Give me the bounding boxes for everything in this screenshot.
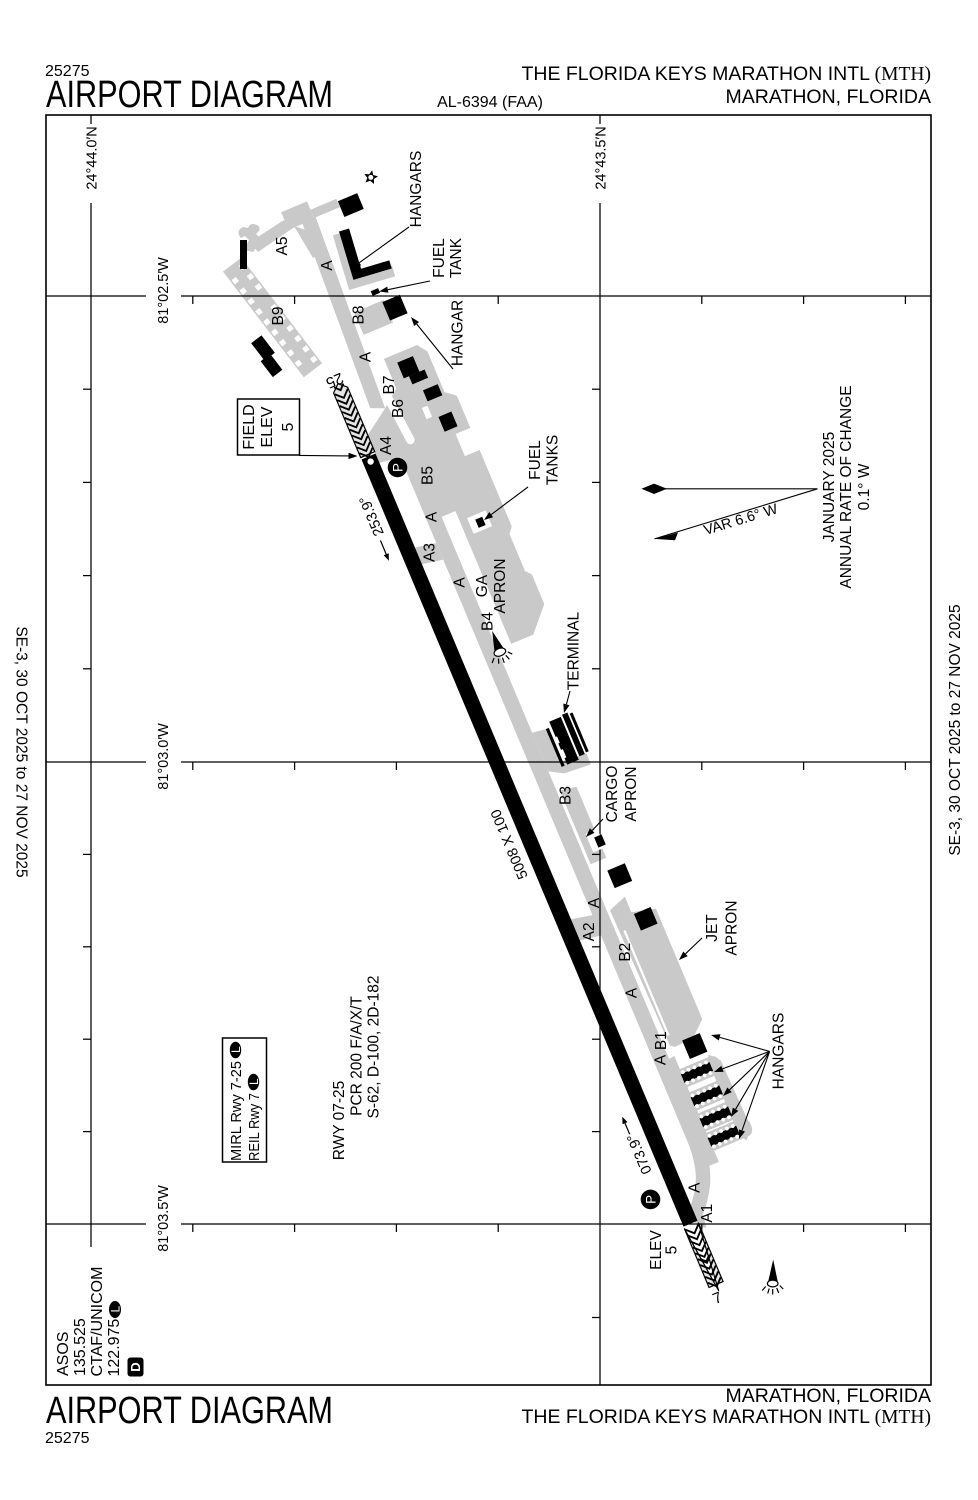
svg-text:5: 5	[280, 422, 297, 431]
svg-text:L: L	[229, 1046, 243, 1053]
svg-text:APRON: APRON	[492, 558, 509, 613]
svg-text:APRON: APRON	[623, 766, 640, 821]
svg-text:B8: B8	[351, 306, 368, 325]
svg-text:A: A	[358, 351, 375, 362]
svg-text:AIRPORT DIAGRAM: AIRPORT DIAGRAM	[46, 1390, 333, 1432]
svg-text:B9: B9	[270, 307, 287, 326]
svg-text:AIRPORT DIAGRAM: AIRPORT DIAGRAM	[46, 74, 333, 116]
svg-text:S-62, D-100, 2D-182: S-62, D-100, 2D-182	[366, 975, 383, 1118]
svg-text:HANGARS: HANGARS	[408, 151, 425, 228]
svg-text:MARATHON, FLORIDA: MARATHON, FLORIDA	[726, 1385, 931, 1407]
svg-text:B5: B5	[420, 466, 437, 485]
svg-text:TANK: TANK	[448, 237, 465, 278]
svg-text:FIELD: FIELD	[241, 404, 258, 449]
svg-text:A4: A4	[378, 436, 395, 455]
svg-text:A: A	[586, 897, 603, 908]
svg-text:GA: GA	[474, 574, 491, 597]
svg-text:HANGAR: HANGAR	[450, 300, 467, 366]
svg-text:0.1° W: 0.1° W	[856, 463, 873, 510]
svg-text:A3: A3	[422, 543, 439, 562]
svg-text:ELEV: ELEV	[648, 1230, 665, 1270]
svg-text:ELEV: ELEV	[259, 406, 276, 447]
svg-text:A1: A1	[699, 1204, 716, 1223]
svg-text:HANGARS: HANGARS	[771, 1013, 788, 1090]
svg-text:TERMINAL: TERMINAL	[566, 611, 583, 690]
svg-text:A2: A2	[581, 922, 598, 941]
svg-text:B6: B6	[390, 399, 407, 418]
svg-text:122.975: 122.975	[106, 1319, 123, 1377]
svg-text:L: L	[247, 1078, 261, 1085]
svg-text:81°03.5′W: 81°03.5′W	[156, 1185, 172, 1252]
svg-text:B7: B7	[381, 376, 398, 395]
svg-text:ASOS: ASOS	[55, 1332, 72, 1376]
svg-text:B3: B3	[558, 786, 575, 805]
svg-text:25275: 25275	[45, 1430, 90, 1447]
svg-text:A: A	[624, 987, 641, 998]
svg-text:D: D	[128, 1362, 143, 1371]
svg-text:PCR 200 F/A/X/T: PCR 200 F/A/X/T	[349, 996, 366, 1116]
svg-text:P: P	[390, 463, 405, 472]
svg-text:P: P	[643, 1195, 658, 1204]
svg-text:SE-3, 30 OCT 2025 to 27 NOV: SE-3, 30 OCT 2025 to 27 NOV 2025	[13, 626, 30, 877]
svg-text:A: A	[653, 1054, 670, 1065]
svg-text:APRON: APRON	[724, 900, 741, 955]
svg-text:24°43.5′N: 24°43.5′N	[594, 126, 610, 189]
svg-text:JET: JET	[704, 914, 721, 942]
svg-text:L: L	[108, 1306, 122, 1313]
svg-text:B2: B2	[617, 943, 634, 962]
svg-text:FUEL: FUEL	[431, 238, 448, 278]
svg-text:A: A	[687, 1182, 704, 1193]
svg-text:REIL Rwy 7: REIL Rwy 7	[246, 1093, 263, 1161]
svg-text:CTAF/UNICOM: CTAF/UNICOM	[89, 1267, 106, 1377]
svg-text:THE FLORIDA KEYS MARATHON INTL: THE FLORIDA KEYS MARATHON INTL (MTH)	[521, 1406, 931, 1428]
svg-text:MARATHON, FLORIDA: MARATHON, FLORIDA	[726, 86, 931, 108]
svg-text:5: 5	[664, 1246, 681, 1255]
svg-text:A: A	[424, 511, 441, 522]
svg-text:JANUARY 2025: JANUARY 2025	[821, 432, 838, 543]
svg-text:MIRL Rwy 7-25: MIRL Rwy 7-25	[228, 1061, 245, 1161]
svg-text:RWY 07-25: RWY 07-25	[331, 1081, 348, 1161]
svg-text:ANNUAL RATE OF CHANGE: ANNUAL RATE OF CHANGE	[838, 385, 855, 588]
svg-text:A: A	[319, 260, 336, 271]
svg-text:81°03.0′W: 81°03.0′W	[156, 723, 172, 790]
svg-text:A5: A5	[274, 237, 291, 256]
svg-text:TANKS: TANKS	[545, 435, 562, 486]
svg-text:SE-3, 30 OCT 2025 to 27 NOV: SE-3, 30 OCT 2025 to 27 NOV 2025	[947, 604, 964, 855]
svg-text:CARGO: CARGO	[604, 766, 621, 823]
svg-text:THE FLORIDA KEYS MARATHON INTL: THE FLORIDA KEYS MARATHON INTL (MTH)	[521, 63, 931, 85]
svg-text:B1: B1	[653, 1031, 670, 1050]
svg-text:AL-6394 (FAA): AL-6394 (FAA)	[437, 94, 543, 111]
svg-text:A: A	[452, 577, 469, 588]
svg-text:FUEL: FUEL	[527, 440, 544, 480]
svg-text:24°44.0′N: 24°44.0′N	[85, 126, 101, 189]
svg-text:135.525: 135.525	[72, 1318, 89, 1376]
svg-text:81°02.5′W: 81°02.5′W	[156, 257, 172, 324]
